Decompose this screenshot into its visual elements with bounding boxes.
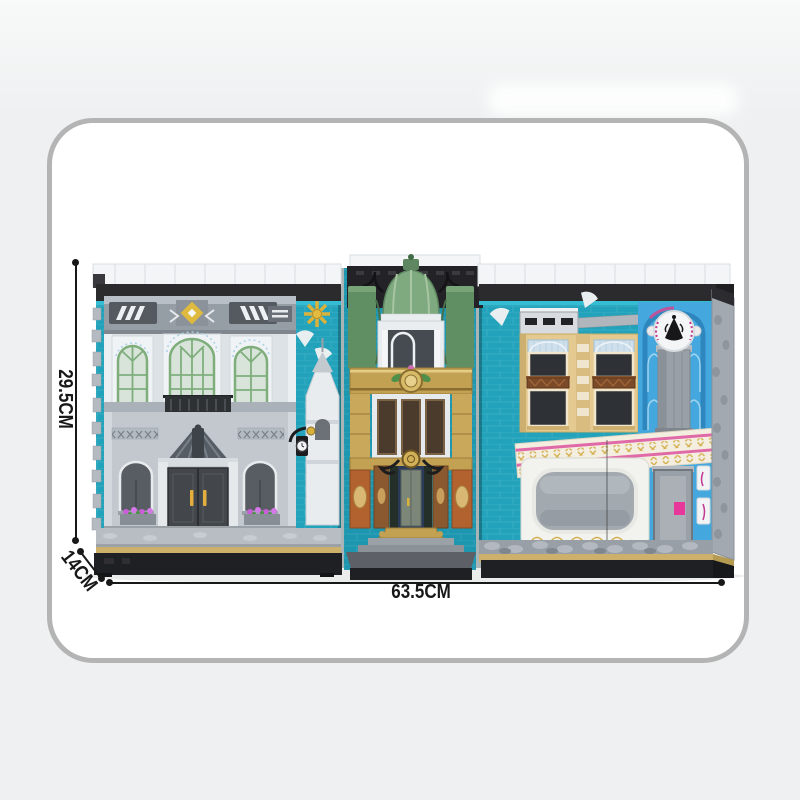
left-baseplate <box>94 553 342 575</box>
dimension-endpoint-dot <box>718 579 725 586</box>
lined-plate <box>268 306 292 322</box>
entrance-doors <box>168 468 228 528</box>
gold-band-upper <box>350 365 472 394</box>
dimension-endpoint-dot <box>72 259 79 266</box>
right-roof-slab <box>478 264 730 286</box>
left-roof-slab <box>93 264 341 286</box>
right-roof-fascia <box>479 284 731 302</box>
arched-window-1 <box>112 336 153 404</box>
chevron-panel-left <box>109 302 157 324</box>
tan-window-column-a <box>526 340 570 430</box>
right-base <box>479 540 734 578</box>
tan-window-column-b <box>592 340 636 430</box>
green-wing-right <box>442 286 474 368</box>
side-niche-left <box>118 462 154 515</box>
green-wing-left <box>348 286 380 368</box>
pink-sign <box>674 502 685 515</box>
side-niche-right <box>242 462 278 515</box>
height-dimension-label: 29.5CM <box>55 361 75 438</box>
dimension-endpoint-dot <box>106 579 113 586</box>
right-baseplate <box>481 560 713 578</box>
white-arcade <box>378 321 444 371</box>
gold-diamond-emblem <box>170 300 214 326</box>
right-stone-edge <box>712 286 734 560</box>
arched-window-2 <box>163 332 221 404</box>
product-illustration <box>0 0 800 800</box>
arched-window-3 <box>230 336 272 404</box>
left-base <box>94 528 342 577</box>
building-model <box>84 254 744 584</box>
dimension-endpoint-dot <box>72 537 79 544</box>
gold-door-sign <box>403 451 420 468</box>
book-hinge-right <box>476 268 482 568</box>
balcony <box>163 395 233 414</box>
side-door <box>652 466 694 546</box>
width-dimension-label: 63.5CM <box>370 584 472 600</box>
